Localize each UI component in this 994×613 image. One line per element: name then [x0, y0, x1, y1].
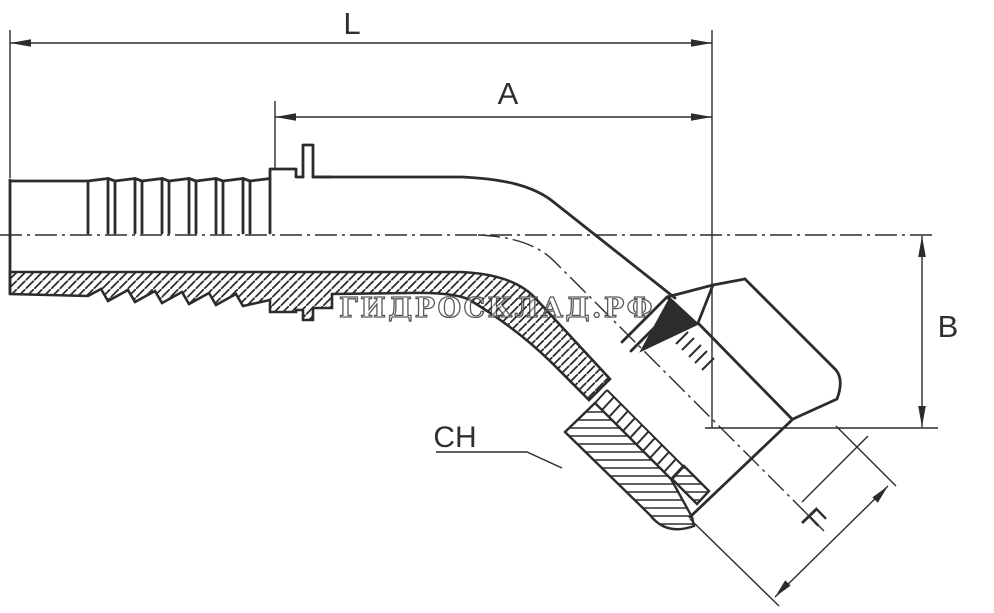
- drawing-canvas: L A B CH F ГИДРОСКЛАД.РФ: [0, 0, 994, 613]
- port-face-tick-line: [802, 436, 868, 502]
- dim-label-drop-height: B: [938, 309, 959, 344]
- dim-label-overall-length: L: [343, 6, 360, 41]
- nut-end-face: [690, 419, 793, 517]
- dim-f-ext-2: [836, 426, 896, 486]
- nut-front-edge: [698, 285, 713, 323]
- technical-drawing: L A B CH F ГИДРОСКЛАД.РФ: [0, 0, 994, 613]
- dim-label-wrench-size: CH: [433, 421, 476, 454]
- nut-far-edge: [745, 279, 840, 419]
- fitting-outline: [10, 145, 840, 517]
- crimp-collar: [270, 169, 303, 179]
- tube-wall-section: [10, 272, 610, 400]
- dim-label-shank-length: A: [498, 76, 519, 111]
- watermark-text: ГИДРОСКЛАД.РФ: [339, 293, 655, 324]
- shank-barbs: [88, 179, 270, 234]
- dim-f-line: [775, 486, 888, 597]
- stop-tab: [303, 145, 332, 177]
- dim-f-ext-1: [690, 519, 779, 606]
- dim-ch-leader: [436, 452, 562, 468]
- nut-top-flat: [713, 279, 745, 285]
- nut-section: [565, 403, 694, 529]
- nut-back-chamfer: [667, 285, 713, 297]
